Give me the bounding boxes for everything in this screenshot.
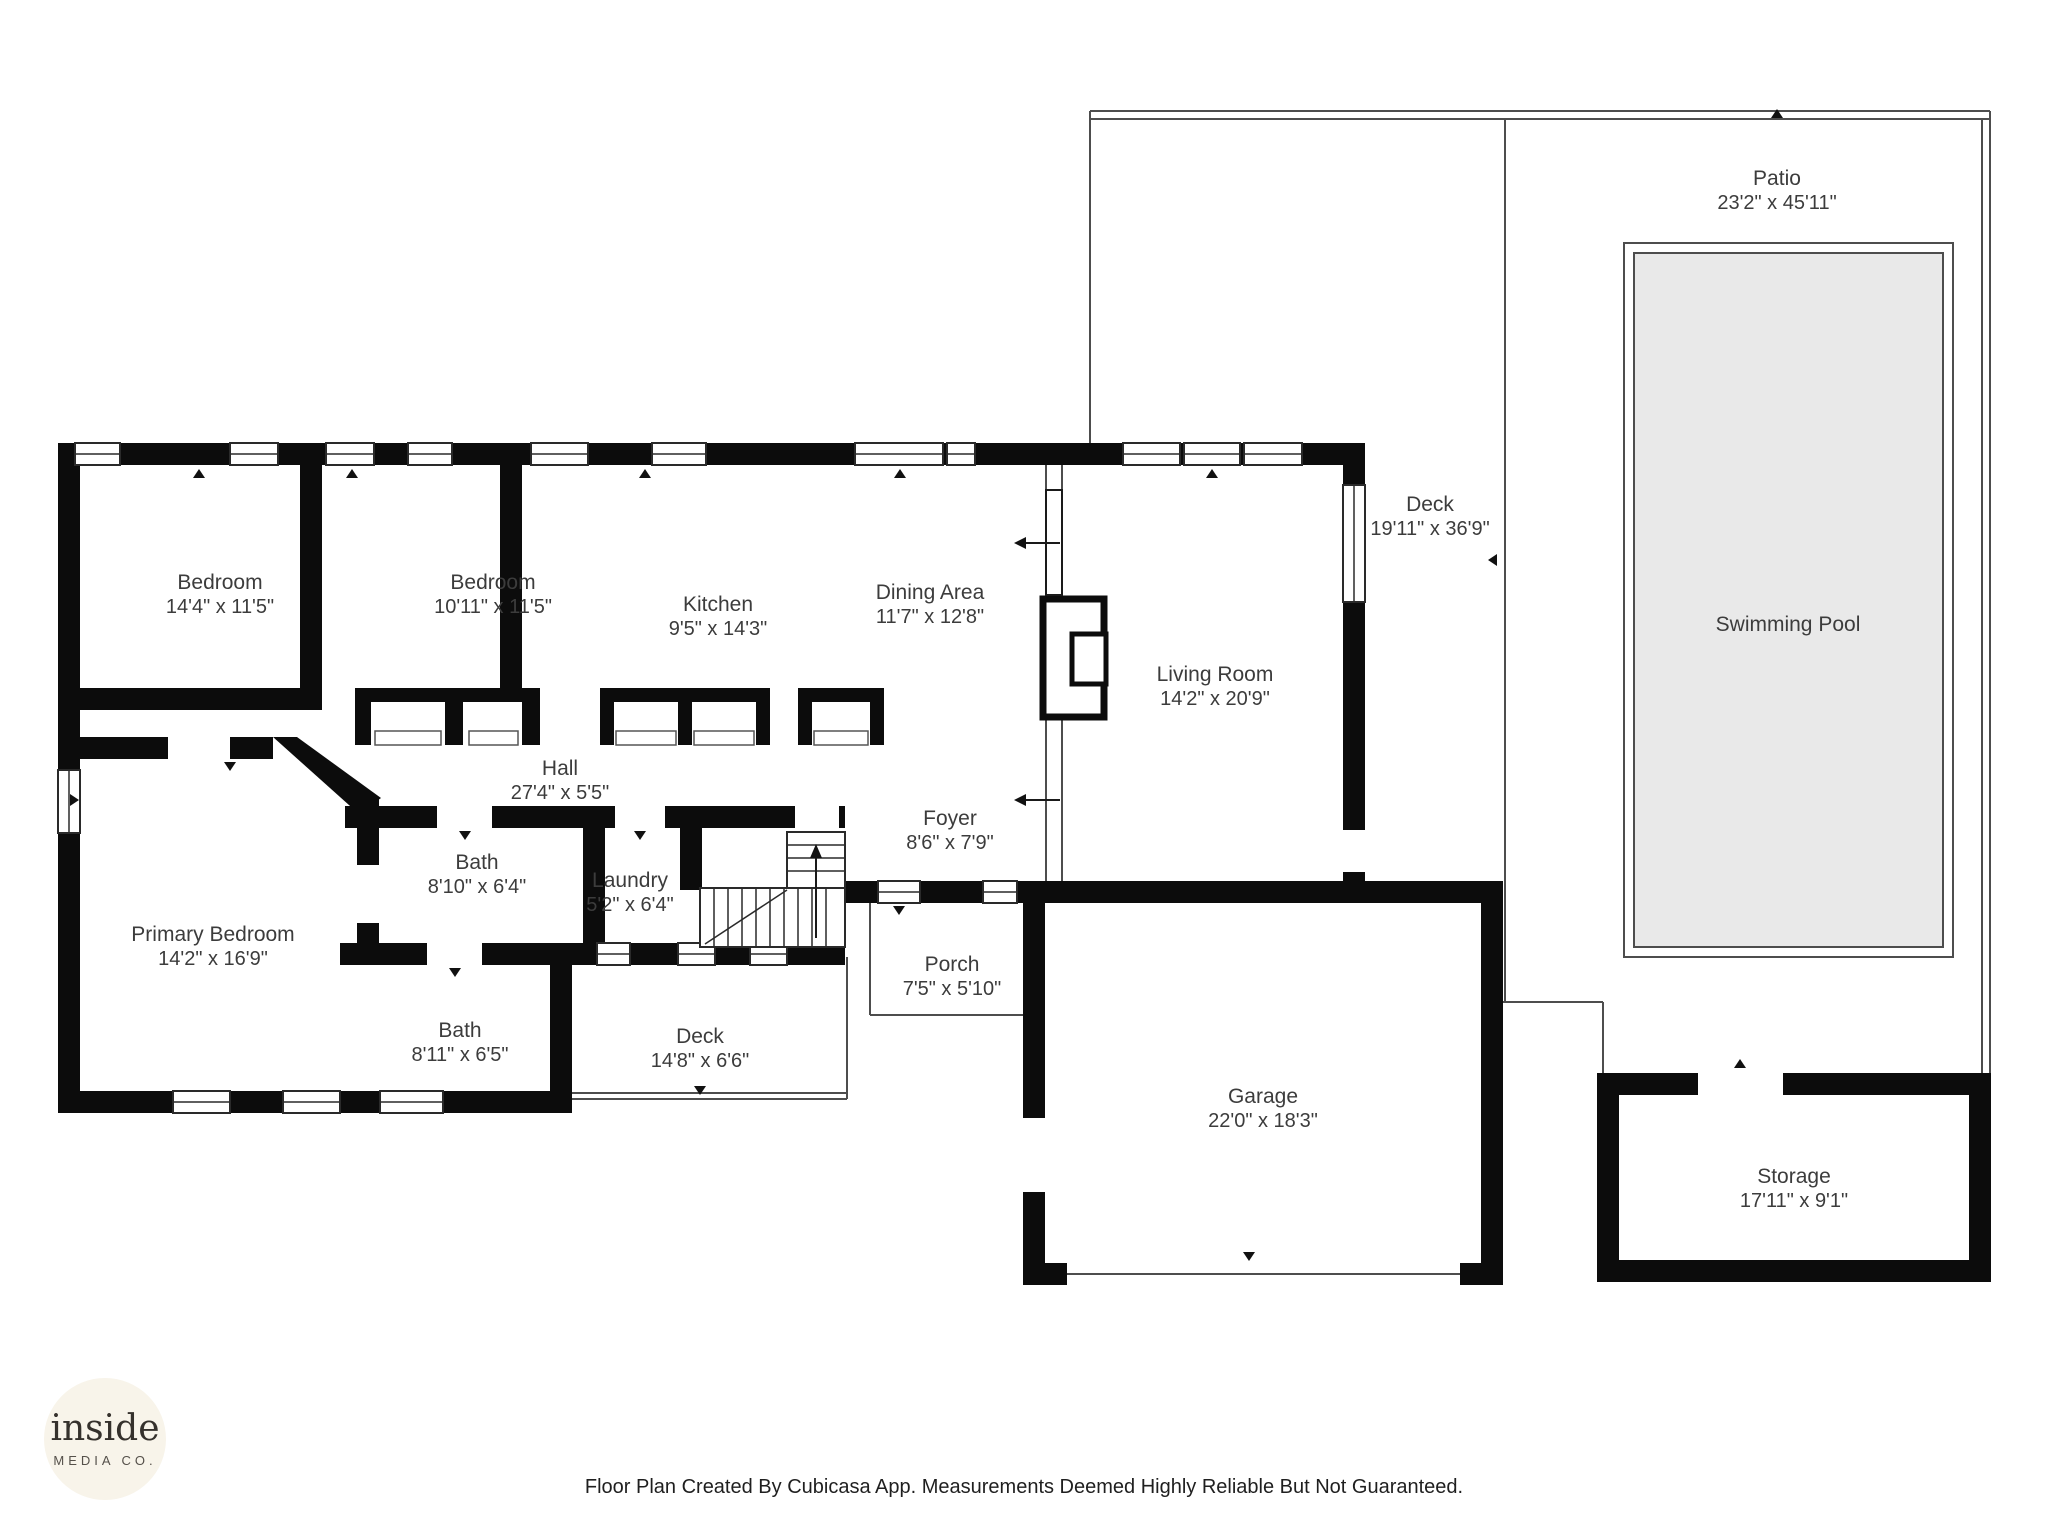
room-label-dining-area: Dining Area11'7" x 12'8" (876, 580, 985, 630)
room-name: Garage (1208, 1084, 1318, 1109)
room-dims: 7'5" x 5'10" (903, 977, 1002, 1002)
room-label-foyer: Foyer8'6" x 7'9" (906, 806, 993, 856)
logo-subtitle: MEDIA CO. (53, 1453, 156, 1468)
room-dims: 23'2" x 45'11" (1717, 191, 1836, 216)
room-dims: 8'6" x 7'9" (906, 831, 993, 856)
room-dims: 22'0" x 18'3" (1208, 1109, 1318, 1134)
room-dims: 14'2" x 16'9" (131, 947, 294, 972)
floor-plan-drawing (0, 0, 2048, 1536)
room-dims: 5'2" x 6'4" (586, 893, 673, 918)
room-name: Deck (1370, 492, 1489, 517)
room-label-bath-2: Bath8'11" x 6'5" (411, 1018, 508, 1068)
room-name: Hall (511, 756, 610, 781)
room-name: Bedroom (166, 570, 274, 595)
room-label-bedroom-1: Bedroom14'4" x 11'5" (166, 570, 274, 620)
room-name: Dining Area (876, 580, 985, 605)
room-name: Living Room (1157, 662, 1274, 687)
room-label-laundry: Laundry5'2" x 6'4" (586, 868, 673, 918)
room-label-kitchen: Kitchen9'5" x 14'3" (669, 592, 768, 642)
room-dims: 14'8" x 6'6" (651, 1049, 750, 1074)
room-label-swimming-pool: Swimming Pool (1716, 612, 1861, 637)
room-dims: 8'10" x 6'4" (428, 875, 527, 900)
room-label-primary-bedroom: Primary Bedroom14'2" x 16'9" (131, 922, 294, 972)
room-dims: 14'4" x 11'5" (166, 595, 274, 620)
room-name: Bath (428, 850, 527, 875)
staircase (700, 832, 845, 947)
room-name: Primary Bedroom (131, 922, 294, 947)
room-name: Storage (1740, 1164, 1848, 1189)
room-name: Bedroom (434, 570, 552, 595)
room-label-garage: Garage22'0" x 18'3" (1208, 1084, 1318, 1134)
logo-wordmark: inside (50, 1411, 159, 1447)
room-dims: 8'11" x 6'5" (411, 1043, 508, 1068)
disclaimer-text: Floor Plan Created By Cubicasa App. Meas… (0, 1476, 2048, 1499)
room-dims: 11'7" x 12'8" (876, 605, 985, 630)
room-dims: 9'5" x 14'3" (669, 617, 768, 642)
room-dims: 19'11" x 36'9" (1370, 517, 1489, 542)
room-label-patio: Patio23'2" x 45'11" (1717, 166, 1836, 216)
room-label-living-room: Living Room14'2" x 20'9" (1157, 662, 1274, 712)
room-label-hall: Hall27'4" x 5'5" (511, 756, 610, 806)
room-dims: 17'11" x 9'1" (1740, 1189, 1848, 1214)
room-dims: 10'11" x 11'5" (434, 595, 552, 620)
room-dims: 14'2" x 20'9" (1157, 687, 1274, 712)
room-name: Kitchen (669, 592, 768, 617)
room-name: Deck (651, 1024, 750, 1049)
fireplace (1043, 599, 1106, 717)
door-direction-marker-icon (70, 109, 1783, 1261)
room-label-deck-bottom: Deck14'8" x 6'6" (651, 1024, 750, 1074)
room-label-storage: Storage17'11" x 9'1" (1740, 1164, 1848, 1214)
room-name: Laundry (586, 868, 673, 893)
room-name: Foyer (906, 806, 993, 831)
room-dims: 27'4" x 5'5" (511, 781, 610, 806)
room-label-porch: Porch7'5" x 5'10" (903, 952, 1002, 1002)
room-name: Swimming Pool (1716, 612, 1861, 637)
room-label-bath-1: Bath8'10" x 6'4" (428, 850, 527, 900)
windows (58, 443, 1365, 1113)
room-name: Porch (903, 952, 1002, 977)
room-name: Patio (1717, 166, 1836, 191)
room-label-deck: Deck19'11" x 36'9" (1370, 492, 1489, 542)
room-name: Bath (411, 1018, 508, 1043)
floor-plan-page: Bedroom14'4" x 11'5" Bedroom10'11" x 11'… (0, 0, 2048, 1536)
swimming-pool-shape (1624, 243, 1953, 957)
room-label-bedroom-2: Bedroom10'11" x 11'5" (434, 570, 552, 620)
